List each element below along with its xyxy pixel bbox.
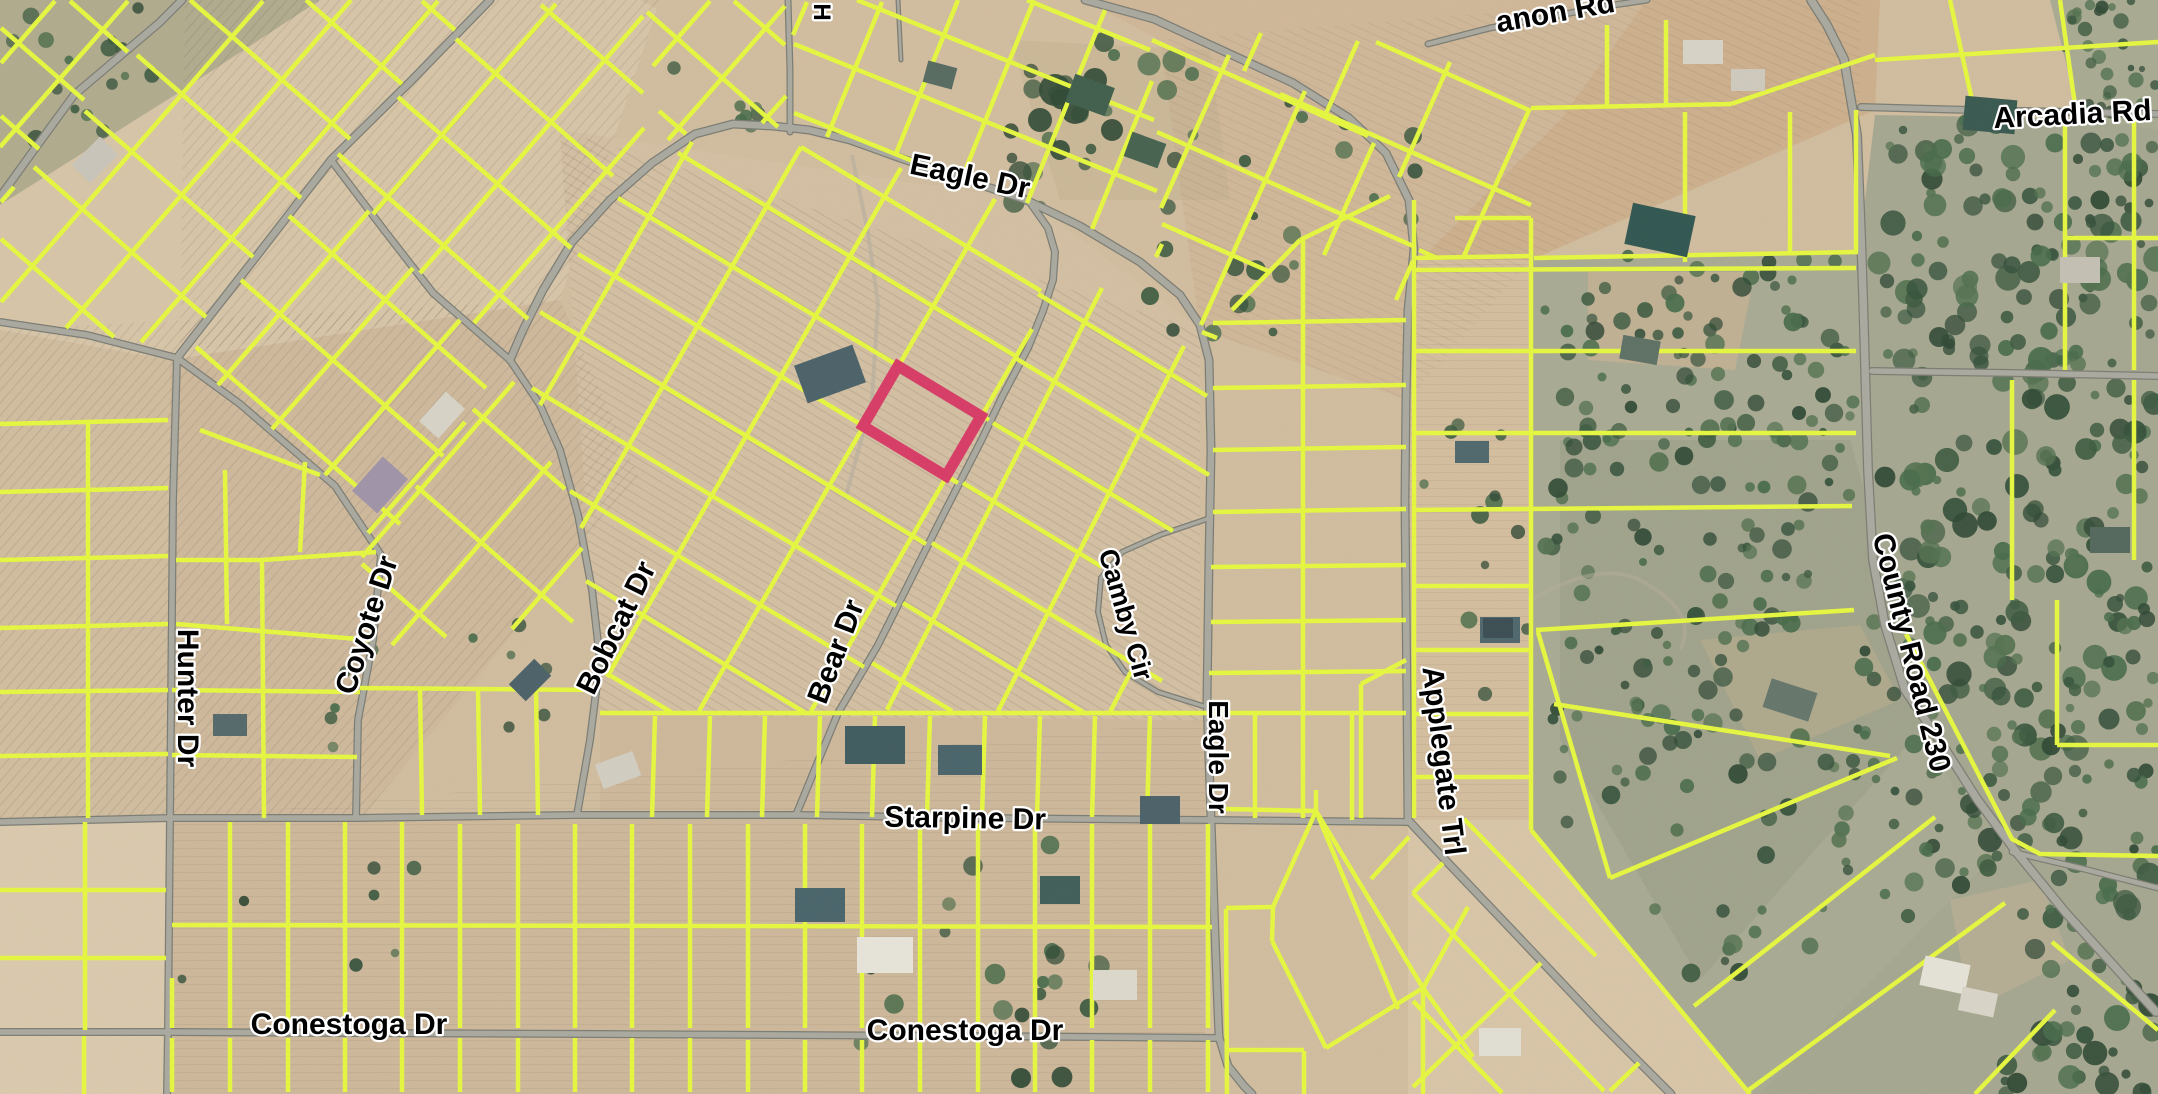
svg-text:H: H (808, 3, 835, 20)
svg-text:Conestoga Dr: Conestoga Dr (867, 1014, 1064, 1047)
svg-text:Eagle Dr: Eagle Dr (1203, 700, 1234, 814)
svg-text:Starpine Dr: Starpine Dr (884, 801, 1047, 837)
svg-text:Hunter Dr: Hunter Dr (171, 629, 204, 768)
svg-text:Conestoga Dr: Conestoga Dr (251, 1008, 448, 1041)
